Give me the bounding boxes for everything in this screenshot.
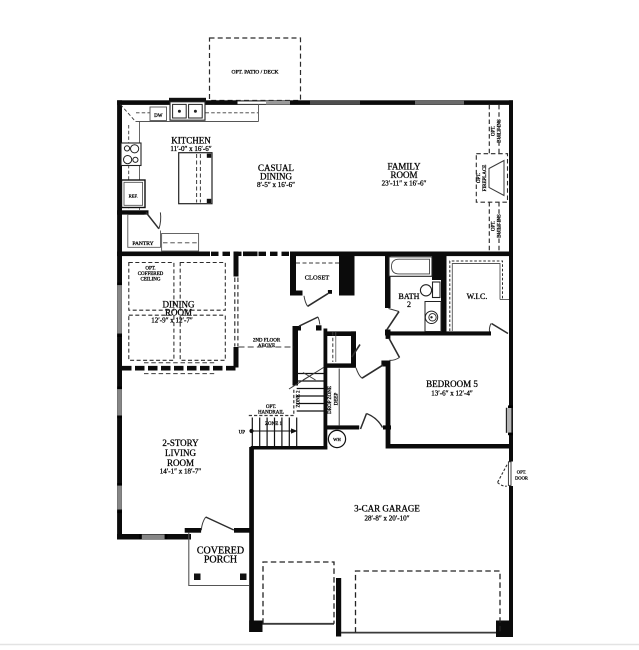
svg-text:OPT.: OPT. [517, 470, 527, 475]
svg-text:ZONE 2: ZONE 2 [297, 390, 302, 408]
svg-text:DROP ZONE: DROP ZONE [328, 386, 333, 414]
svg-text:UP: UP [239, 431, 246, 436]
svg-text:WH: WH [333, 437, 341, 442]
svg-text:PORCH: PORCH [204, 554, 237, 565]
svg-text:CLOSET: CLOSET [305, 275, 330, 282]
svg-text:2ND FLOOR: 2ND FLOOR [253, 339, 281, 344]
svg-text:DW: DW [154, 114, 163, 119]
svg-text:13′-6″ x 12′-4″: 13′-6″ x 12′-4″ [431, 390, 473, 398]
svg-text:8′-5″ x 16′-6″: 8′-5″ x 16′-6″ [257, 181, 295, 189]
svg-text:OPT.: OPT. [491, 126, 496, 136]
svg-text:OPT.: OPT. [491, 221, 496, 231]
svg-text:PANTRY: PANTRY [132, 241, 153, 247]
svg-text:2: 2 [407, 300, 411, 309]
svg-text:11′-0″ x 16′-6″: 11′-0″ x 16′-6″ [170, 145, 211, 153]
svg-text:REF.: REF. [129, 194, 138, 199]
svg-text:BUILT-INS: BUILT-INS [497, 119, 502, 143]
svg-text:OPT. PATIO / DECK: OPT. PATIO / DECK [231, 70, 278, 76]
svg-text:COFFERED: COFFERED [138, 272, 164, 277]
svg-text:OPT.: OPT. [477, 173, 482, 183]
svg-text:LIVING: LIVING [165, 448, 196, 458]
svg-text:14′-1″ x 18′-7″: 14′-1″ x 18′-7″ [160, 468, 202, 476]
svg-text:BEDROOM 5: BEDROOM 5 [426, 379, 478, 389]
svg-text:BUILT-INS: BUILT-INS [497, 214, 502, 238]
svg-text:ROOM: ROOM [390, 170, 417, 180]
svg-text:OPT.: OPT. [145, 267, 155, 272]
svg-text:FIREPLACE: FIREPLACE [483, 165, 488, 192]
svg-text:12′-9″ x 12′-7″: 12′-9″ x 12′-7″ [151, 316, 193, 324]
svg-text:DINING: DINING [260, 172, 292, 182]
svg-text:2-STORY: 2-STORY [162, 438, 199, 448]
svg-text:W.I.C.: W.I.C. [467, 292, 488, 301]
svg-text:28′-8″ x 20′-10″: 28′-8″ x 20′-10″ [364, 515, 409, 523]
svg-text:DOOR: DOOR [515, 476, 529, 481]
svg-text:3-CAR GARAGE: 3-CAR GARAGE [354, 504, 420, 514]
svg-text:OPT.: OPT. [266, 405, 276, 410]
svg-text:CEILING: CEILING [141, 278, 161, 283]
svg-text:HANDRAIL: HANDRAIL [258, 411, 284, 416]
svg-text:ROOM: ROOM [167, 458, 194, 468]
svg-text:23′-11″ x 16′-6″: 23′-11″ x 16′-6″ [382, 180, 427, 188]
